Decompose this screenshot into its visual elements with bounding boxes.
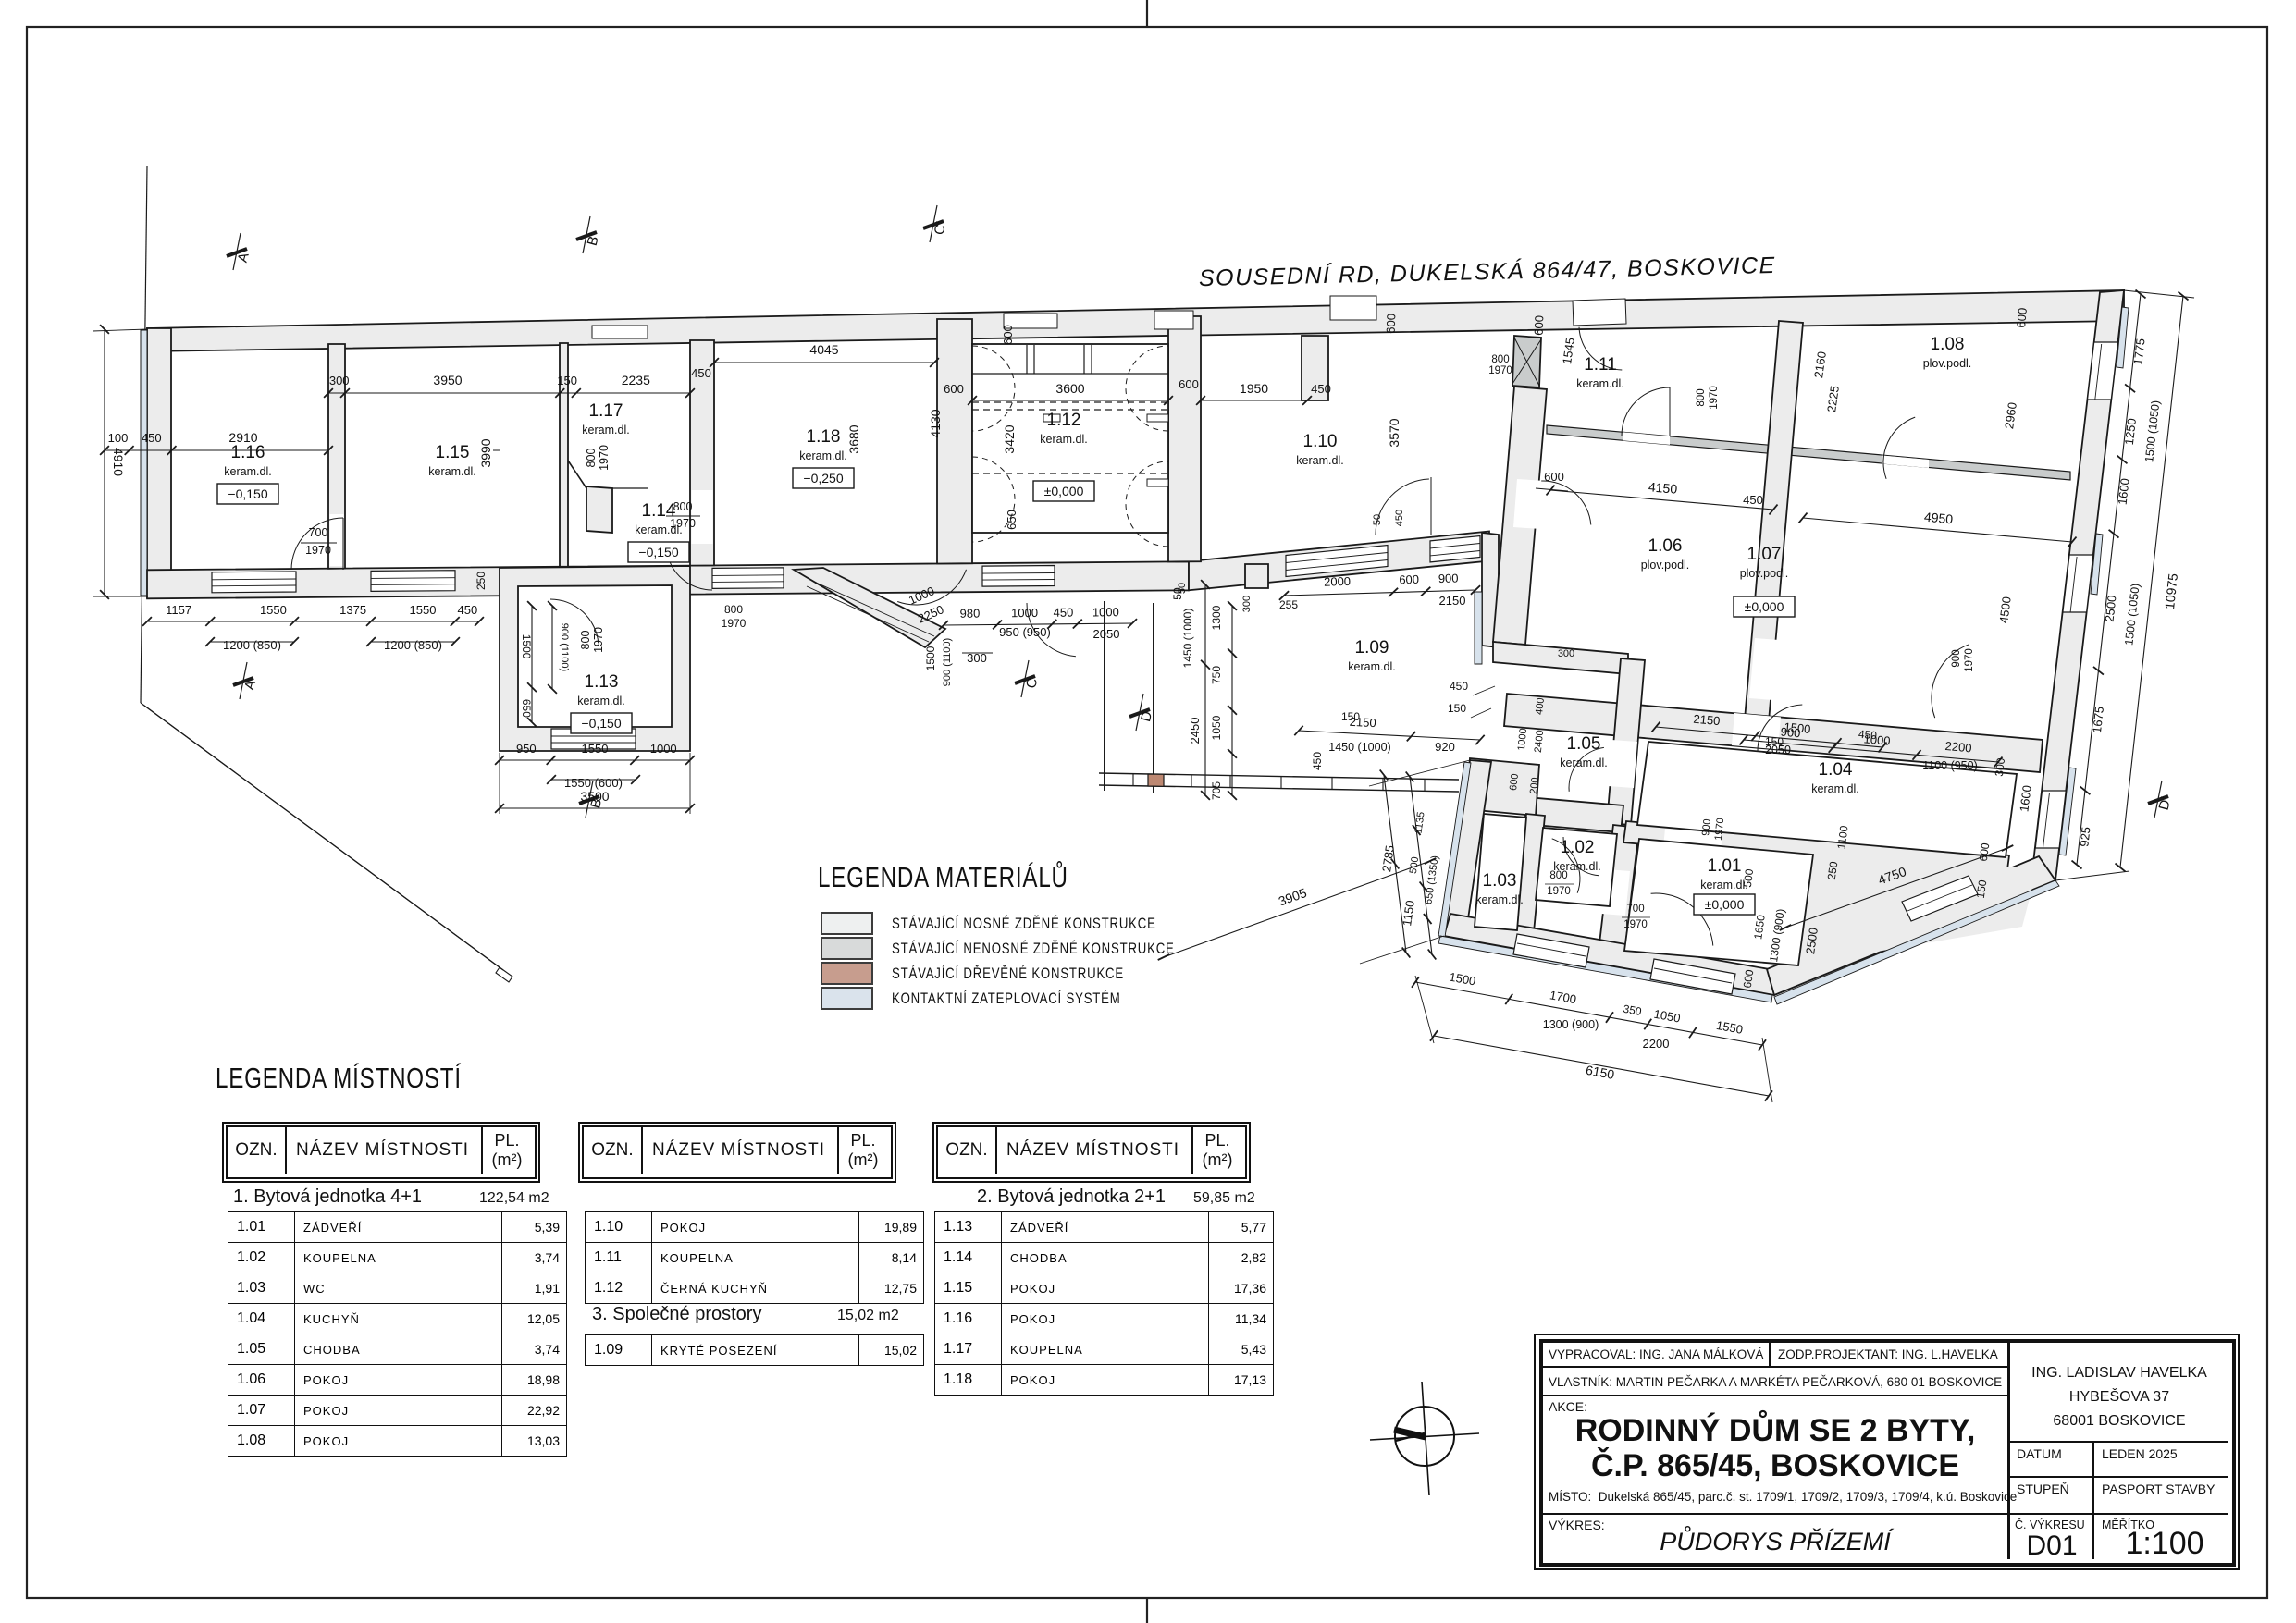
svg-text:1300: 1300 (1210, 605, 1223, 630)
svg-text:1.07: 1.07 (1747, 545, 1782, 564)
svg-text:±0,000: ±0,000 (1044, 484, 1084, 498)
svg-text:1970: 1970 (592, 627, 605, 653)
svg-text:800: 800 (579, 631, 592, 650)
svg-text:keram.dl.: keram.dl. (1475, 893, 1523, 906)
svg-text:2000: 2000 (1324, 574, 1351, 589)
svg-text:plov.podl.: plov.podl. (1740, 567, 1789, 580)
svg-text:1.08: 1.08 (1931, 335, 1965, 354)
svg-text:1550: 1550 (582, 742, 609, 756)
svg-text:400: 400 (1534, 697, 1547, 716)
svg-text:±0,000: ±0,000 (1705, 897, 1745, 912)
svg-text:1100 (950): 1100 (950) (1922, 759, 1978, 772)
svg-text:600: 600 (1399, 572, 1419, 587)
svg-text:1500: 1500 (1784, 719, 1811, 736)
svg-text:1.09: 1.09 (1355, 638, 1389, 658)
svg-text:1.15: 1.15 (436, 443, 470, 462)
svg-text:100: 100 (108, 431, 129, 445)
svg-text:1.18: 1.18 (807, 427, 841, 447)
svg-text:150: 150 (1341, 710, 1360, 723)
svg-text:1.12: 1.12 (1047, 411, 1081, 430)
svg-text:1200 (850): 1200 (850) (223, 638, 281, 652)
svg-text:500: 500 (1408, 856, 1421, 875)
svg-text:1600: 1600 (2116, 477, 2132, 505)
svg-text:2910: 2910 (228, 430, 257, 445)
svg-text:1500: 1500 (924, 646, 937, 670)
svg-text:1.02: 1.02 (1561, 838, 1595, 857)
svg-text:1970: 1970 (1709, 386, 1720, 410)
svg-text:plov.podl.: plov.podl. (1641, 559, 1690, 572)
svg-text:2235: 2235 (622, 373, 650, 387)
svg-text:3570: 3570 (1387, 418, 1401, 447)
svg-text:1000: 1000 (1092, 605, 1119, 619)
svg-text:450: 450 (1743, 493, 1763, 507)
svg-text:4150: 4150 (1648, 479, 1678, 497)
svg-text:keram.dl.: keram.dl. (224, 465, 271, 478)
svg-text:600: 600 (1001, 325, 1015, 345)
svg-text:1.01: 1.01 (1708, 856, 1742, 876)
svg-text:keram.dl.: keram.dl. (1348, 660, 1395, 673)
svg-text:50: 50 (1177, 583, 1188, 594)
svg-text:3950: 3950 (433, 373, 462, 387)
svg-text:1.03: 1.03 (1483, 871, 1517, 891)
svg-text:keram.dl.: keram.dl. (1560, 756, 1607, 769)
svg-text:800: 800 (673, 500, 693, 513)
svg-text:2500: 2500 (2102, 595, 2118, 622)
svg-text:800: 800 (585, 449, 598, 468)
svg-text:4950: 4950 (1923, 510, 1954, 527)
svg-text:950 (950): 950 (950) (999, 625, 1051, 639)
svg-text:450: 450 (1054, 606, 1074, 620)
svg-text:600: 600 (1532, 315, 1547, 336)
svg-text:1250: 1250 (2122, 417, 2139, 445)
svg-text:keram.dl.: keram.dl. (1811, 782, 1858, 795)
svg-text:keram.dl.: keram.dl. (428, 465, 475, 478)
svg-text:2200: 2200 (1944, 739, 1972, 755)
svg-text:150: 150 (1974, 879, 1990, 899)
svg-text:450: 450 (1450, 680, 1468, 693)
svg-text:300: 300 (1558, 648, 1574, 659)
svg-text:1450 (1000): 1450 (1000) (1181, 609, 1194, 669)
svg-text:750: 750 (1210, 666, 1223, 684)
svg-text:800: 800 (724, 603, 743, 616)
svg-text:1450 (1000): 1450 (1000) (1328, 741, 1390, 754)
svg-text:2150: 2150 (1439, 594, 1466, 608)
svg-text:1550: 1550 (260, 603, 287, 617)
svg-text:2200: 2200 (1643, 1037, 1670, 1051)
svg-text:2450: 2450 (1188, 718, 1202, 744)
svg-text:1970: 1970 (305, 544, 331, 557)
svg-text:1970: 1970 (722, 617, 747, 630)
svg-text:1970: 1970 (1488, 365, 1512, 376)
svg-text:950: 950 (516, 742, 537, 756)
svg-text:300: 300 (1993, 756, 2007, 777)
svg-text:2050: 2050 (1093, 627, 1120, 641)
svg-text:600: 600 (2014, 307, 2030, 328)
svg-text:1200 (850): 1200 (850) (384, 638, 442, 652)
svg-text:1375: 1375 (339, 603, 366, 617)
svg-text:600: 600 (1508, 773, 1521, 792)
svg-text:3500: 3500 (580, 789, 609, 804)
svg-text:650: 650 (1005, 510, 1018, 530)
svg-text:3420: 3420 (1002, 424, 1017, 453)
svg-text:705: 705 (1210, 781, 1223, 800)
svg-text:1.11: 1.11 (1584, 355, 1617, 375)
svg-text:925: 925 (2077, 826, 2092, 847)
svg-text:450: 450 (1311, 752, 1324, 770)
svg-text:300: 300 (329, 374, 350, 387)
svg-text:600: 600 (1544, 470, 1564, 484)
svg-text:1550: 1550 (410, 603, 437, 617)
svg-text:900: 900 (1700, 818, 1713, 837)
svg-text:±0,000: ±0,000 (1745, 599, 1784, 614)
svg-text:450: 450 (1858, 728, 1878, 743)
svg-text:700: 700 (309, 526, 328, 539)
svg-text:450: 450 (142, 431, 162, 445)
svg-text:150: 150 (1448, 702, 1466, 715)
svg-text:−0,150: −0,150 (581, 716, 621, 731)
svg-text:1157: 1157 (166, 603, 191, 617)
svg-text:1970: 1970 (1713, 818, 1726, 842)
svg-text:keram.dl.: keram.dl. (1576, 377, 1623, 390)
svg-text:450: 450 (691, 366, 711, 380)
svg-text:450: 450 (1311, 382, 1331, 396)
svg-text:1000: 1000 (1516, 728, 1529, 752)
svg-text:1970: 1970 (1964, 648, 1975, 672)
svg-text:1.10: 1.10 (1303, 432, 1338, 451)
svg-text:keram.dl.: keram.dl. (1040, 433, 1087, 446)
svg-text:650: 650 (520, 699, 533, 718)
svg-text:700: 700 (1626, 904, 1644, 915)
svg-text:1050: 1050 (1210, 715, 1223, 740)
svg-text:−0,250: −0,250 (803, 471, 843, 486)
svg-text:150: 150 (557, 374, 577, 387)
svg-text:900 (1100): 900 (1100) (559, 623, 570, 671)
svg-text:keram.dl.: keram.dl. (582, 424, 629, 436)
svg-text:−0,150: −0,150 (228, 486, 267, 501)
svg-text:600: 600 (1179, 377, 1199, 391)
svg-text:2150: 2150 (1693, 712, 1721, 729)
svg-text:920: 920 (1435, 740, 1455, 754)
svg-text:1675: 1675 (2090, 706, 2106, 733)
svg-text:keram.dl.: keram.dl. (577, 695, 624, 707)
svg-text:keram.dl.: keram.dl. (799, 449, 846, 462)
svg-text:1.16: 1.16 (231, 443, 265, 462)
svg-text:4910: 4910 (111, 448, 126, 476)
svg-text:900: 900 (1951, 649, 1962, 667)
svg-text:1500: 1500 (520, 634, 533, 659)
svg-text:250: 250 (1825, 860, 1841, 880)
svg-text:1970: 1970 (1547, 886, 1571, 897)
svg-text:900: 900 (1438, 571, 1459, 585)
svg-text:1.04: 1.04 (1819, 760, 1853, 780)
svg-text:1000: 1000 (650, 742, 677, 756)
svg-text:plov.podl.: plov.podl. (1923, 357, 1972, 370)
svg-text:3990: 3990 (478, 438, 493, 467)
svg-text:1775: 1775 (2130, 338, 2147, 365)
svg-text:800: 800 (1696, 388, 1707, 406)
svg-text:980: 980 (960, 607, 981, 621)
svg-text:500: 500 (1741, 867, 1756, 888)
svg-text:1000: 1000 (1011, 606, 1038, 620)
svg-text:250: 250 (475, 572, 488, 590)
svg-text:150: 150 (1765, 735, 1784, 748)
svg-text:50: 50 (1372, 514, 1383, 525)
svg-text:1300 (900): 1300 (900) (1543, 1018, 1599, 1031)
svg-text:600: 600 (1977, 842, 1993, 862)
svg-text:2400: 2400 (1533, 730, 1546, 754)
svg-text:900 (1100): 900 (1100) (942, 638, 953, 686)
svg-text:200: 200 (1528, 777, 1541, 795)
svg-text:800: 800 (1491, 354, 1509, 365)
svg-text:300: 300 (1241, 596, 1253, 612)
svg-text:450: 450 (458, 603, 478, 617)
svg-text:−0,150: −0,150 (638, 545, 678, 559)
svg-text:800: 800 (1549, 870, 1567, 881)
svg-text:1.05: 1.05 (1567, 734, 1601, 754)
svg-text:1970: 1970 (598, 445, 611, 471)
svg-text:1.13: 1.13 (585, 672, 619, 692)
svg-text:1950: 1950 (1240, 381, 1268, 396)
svg-text:keram.dl.: keram.dl. (1296, 454, 1343, 467)
svg-text:1.06: 1.06 (1648, 536, 1683, 556)
svg-text:600: 600 (1741, 968, 1757, 989)
svg-text:1550 (600): 1550 (600) (564, 776, 623, 790)
svg-text:450: 450 (1394, 510, 1405, 526)
svg-text:1.17: 1.17 (589, 401, 623, 421)
svg-text:4130: 4130 (928, 409, 943, 437)
svg-text:1970: 1970 (670, 517, 696, 530)
svg-text:600: 600 (944, 382, 964, 396)
svg-text:1970: 1970 (1623, 919, 1648, 930)
svg-text:3680: 3680 (846, 424, 861, 453)
svg-text:4045: 4045 (809, 342, 838, 357)
svg-text:600: 600 (1384, 314, 1399, 334)
svg-text:255: 255 (1279, 598, 1298, 611)
svg-text:3600: 3600 (1055, 381, 1084, 396)
